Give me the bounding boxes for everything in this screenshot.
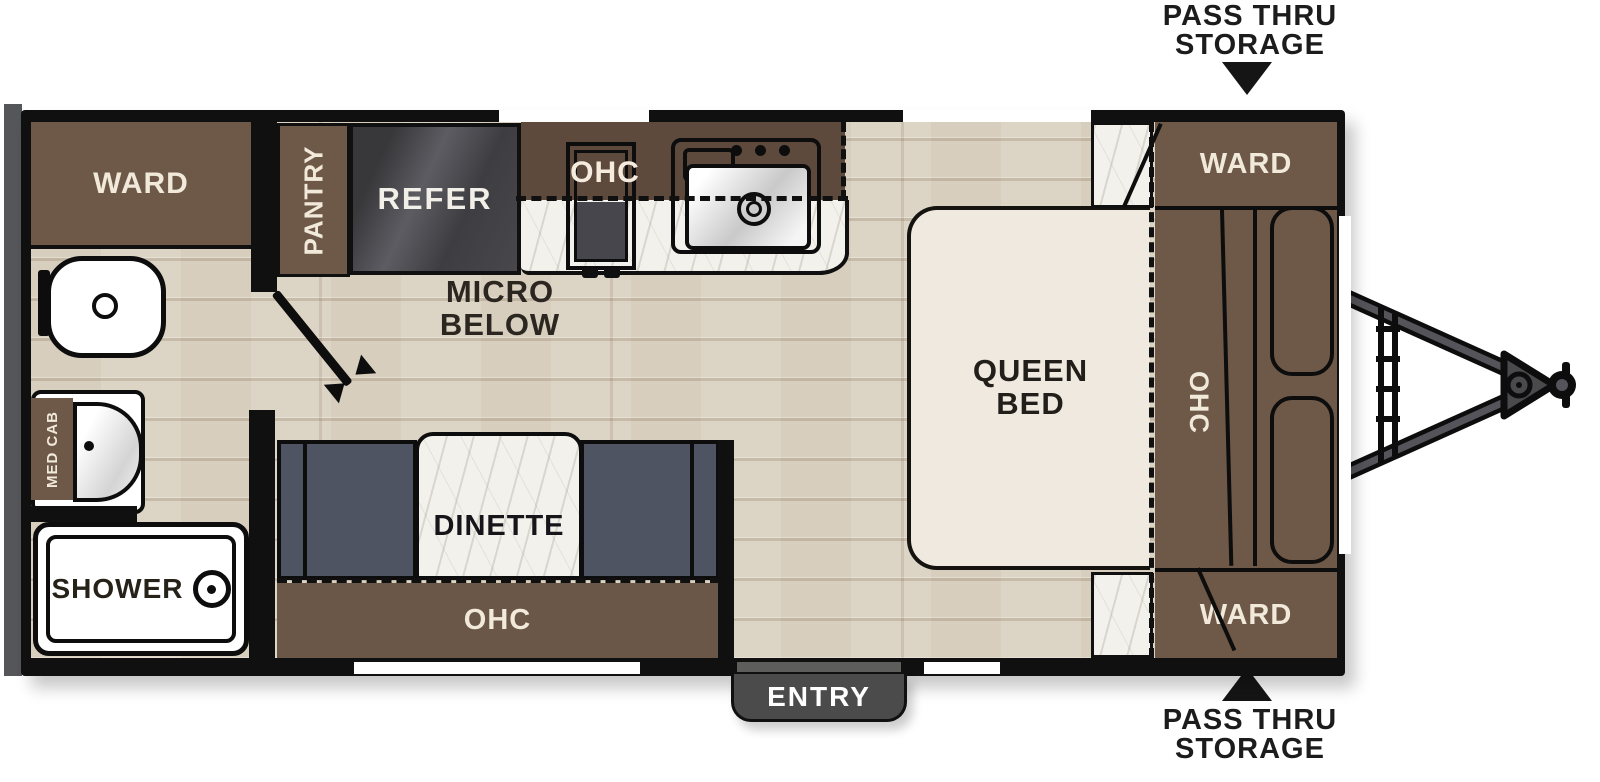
sink-knob	[755, 145, 766, 156]
dinette-table: DINETTE	[415, 432, 583, 580]
window-top-left	[499, 110, 649, 122]
window-top-right	[903, 110, 1091, 122]
pass-thru-storage-label-bottom: PASS THRU STORAGE	[1130, 706, 1370, 764]
kitchen-ohc-dashed-line	[516, 196, 848, 201]
arrow-down-icon	[1222, 62, 1272, 95]
shower: SHOWER	[33, 522, 249, 656]
wardrobe-rear: WARD	[31, 122, 251, 249]
bedroom-ohc-dashed-line	[1149, 122, 1154, 658]
dinette-bench-left	[277, 440, 417, 580]
pantry: PANTRY	[277, 123, 350, 277]
entry-tab: ENTRY	[731, 674, 907, 722]
refrigerator: REFER	[349, 123, 521, 275]
entry-step	[735, 660, 903, 674]
dinette-end-wall	[718, 440, 734, 658]
window-bottom-left	[354, 662, 640, 674]
window-bottom-right	[924, 662, 1000, 674]
shower-drain-icon	[193, 570, 231, 608]
trailer-hitch	[1340, 268, 1580, 502]
hitch-rail	[1392, 314, 1398, 456]
bathroom-divider-wall	[31, 506, 137, 522]
kitchen-ohc-label: OHC	[545, 156, 665, 190]
micro-below-label: MICRO BELOW	[408, 276, 592, 342]
bathroom-wall-upper	[251, 122, 277, 292]
pass-thru-storage-label-top: PASS THRU STORAGE	[1130, 2, 1370, 60]
bedroom-ohc-label: OHC	[1170, 345, 1226, 460]
cabinet-hinge	[604, 268, 620, 278]
toilet-tank	[38, 270, 50, 336]
nightstand-bottom	[1091, 572, 1153, 658]
front-storage-cushion	[1270, 396, 1334, 564]
wardrobe-front-top: WARD	[1155, 122, 1337, 210]
toilet-flush-button	[92, 293, 118, 319]
queen-bed: QUEEN BED	[907, 206, 1150, 570]
shower-pan: SHOWER	[46, 535, 236, 643]
wardrobe-front-bottom: WARD	[1155, 568, 1337, 658]
front-storage-cushion	[1270, 206, 1334, 376]
rear-bumper	[4, 104, 22, 676]
bathroom-sink-drain	[84, 441, 94, 451]
bed-platform-line	[1253, 208, 1257, 566]
floorplan-canvas: PASS THRU STORAGE PASS THRU STORAGE WARD	[0, 0, 1600, 782]
sink-knob	[779, 145, 790, 156]
med-cab: MED CAB	[31, 398, 73, 500]
dinette-ohc-band: OHC	[277, 583, 718, 658]
bathroom-wall-lower	[249, 410, 275, 658]
kitchen-ohc-dashed-line-vertical	[841, 122, 846, 200]
dinette-bench-right	[580, 440, 720, 580]
queen-bed-label: QUEEN BED	[911, 210, 1150, 566]
pass-thru-storage-door	[1339, 216, 1351, 554]
